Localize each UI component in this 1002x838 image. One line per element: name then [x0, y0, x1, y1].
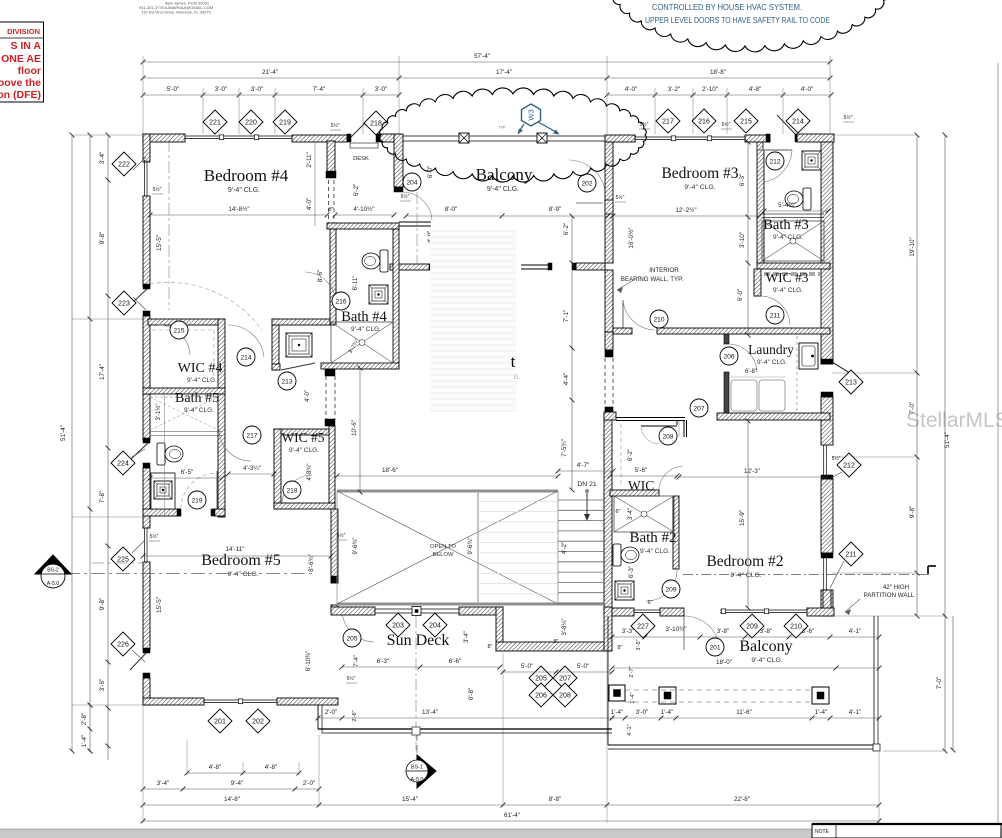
- svg-text:5½″: 5½″: [616, 194, 625, 201]
- svg-text:9'-4": 9'-4": [231, 780, 244, 787]
- svg-text:4'-7": 4'-7": [577, 462, 590, 469]
- svg-text:4'-2": 4'-2": [561, 542, 568, 555]
- svg-text:BS-2: BS-2: [47, 568, 59, 574]
- svg-text:5½″: 5½″: [722, 121, 731, 128]
- svg-text:8'-6": 8'-6": [317, 270, 324, 283]
- svg-text:8'-8": 8'-8": [549, 796, 562, 803]
- svg-text:210: 210: [653, 316, 664, 323]
- svg-text:10'-6": 10'-6": [351, 420, 358, 436]
- svg-text:214: 214: [240, 354, 251, 361]
- svg-text:3'-8": 3'-8": [717, 628, 730, 635]
- svg-text:3'-10¾": 3'-10¾": [665, 626, 686, 633]
- svg-text:2'-0": 2'-0": [325, 709, 338, 716]
- svg-text:5'-6": 5'-6": [635, 467, 648, 474]
- svg-text:9′-4″ CLG.: 9′-4″ CLG.: [684, 184, 715, 191]
- svg-text:9′-4″ CLG.: 9′-4″ CLG.: [773, 287, 803, 294]
- svg-text:9′-4″ CLG.: 9′-4″ CLG.: [351, 326, 381, 333]
- svg-text:1'-4": 1'-4": [81, 735, 88, 748]
- svg-text:221: 221: [209, 119, 221, 126]
- svg-text:6'-3": 6'-3": [739, 174, 746, 187]
- svg-text:215: 215: [740, 118, 752, 125]
- svg-text:3'-5": 3'-5": [636, 639, 642, 650]
- svg-text:9′-4″ CLG.: 9′-4″ CLG.: [640, 548, 670, 555]
- svg-text:51'-4": 51'-4": [944, 432, 951, 448]
- svg-text:202: 202: [252, 718, 264, 725]
- svg-text:209: 209: [746, 623, 758, 630]
- svg-text:3'-8": 3'-8": [760, 628, 773, 635]
- svg-text:205: 205: [535, 675, 547, 682]
- svg-text:1'-4": 1'-4": [815, 709, 828, 716]
- svg-text:3'-4": 3'-4": [157, 780, 170, 787]
- svg-text:4'-1": 4'-1": [849, 628, 862, 635]
- svg-text:3'-6": 3'-6": [99, 679, 106, 692]
- svg-text:9′-4″ CLG.: 9′-4″ CLG.: [289, 447, 319, 454]
- svg-text:9′-4″ CLG.: 9′-4″ CLG.: [757, 359, 787, 366]
- svg-text:219: 219: [279, 119, 291, 126]
- svg-text:2'-6": 2'-6": [352, 710, 358, 721]
- svg-text:Bath #3: Bath #3: [763, 217, 809, 233]
- svg-text:21'-4": 21'-4": [262, 69, 278, 76]
- svg-text:9′-4″ CLG.: 9′-4″ CLG.: [228, 187, 260, 194]
- svg-text:Laundry: Laundry: [748, 342, 794, 357]
- svg-text:5½″: 5½″: [401, 193, 410, 200]
- svg-text:17'-4": 17'-4": [496, 69, 512, 76]
- svg-text:2'-0": 2'-0": [303, 780, 316, 787]
- svg-text:2'-8": 2'-8": [81, 713, 88, 726]
- svg-text:15'-4": 15'-4": [402, 796, 418, 803]
- svg-text:9′-4″ CLG.: 9′-4″ CLG.: [773, 234, 803, 241]
- svg-text:2'-7": 2'-7": [629, 666, 635, 677]
- svg-text:6'-0": 6'-0": [427, 166, 434, 179]
- svg-text:9′-4″ CLG.: 9′-4″ CLG.: [751, 657, 782, 664]
- svg-text:6'-8": 6'-8": [745, 369, 757, 375]
- svg-text:7'-0": 7'-0": [909, 402, 916, 415]
- svg-text:oove the: oove the: [0, 77, 41, 89]
- svg-text:BS-1: BS-1: [411, 765, 423, 771]
- svg-text:StellarMLS: StellarMLS: [906, 409, 1002, 432]
- svg-text:3'-3": 3'-3": [622, 628, 635, 635]
- svg-text:UPPER LEVEL DOORS TO HAVE SAF: UPPER LEVEL DOORS TO HAVE SAFETY RAIL TO…: [645, 15, 830, 25]
- svg-text:1'-4": 1'-4": [630, 692, 636, 703]
- svg-text:W3: W3: [527, 109, 536, 120]
- svg-text:3'-0": 3'-0": [636, 709, 649, 716]
- svg-text:NOTE: NOTE: [815, 829, 830, 835]
- svg-text:224: 224: [117, 460, 129, 467]
- svg-text:6″: 6″: [647, 600, 652, 606]
- svg-text:57'-4": 57'-4": [474, 53, 490, 60]
- svg-text:Bath #2: Bath #2: [629, 530, 676, 546]
- svg-text:22'-8": 22'-8": [734, 796, 750, 803]
- svg-text:9′-4″ CLG.: 9′-4″ CLG.: [187, 377, 217, 384]
- svg-text:8″: 8″: [617, 645, 622, 651]
- svg-text:9′-4″ CLG.: 9′-4″ CLG.: [730, 572, 761, 579]
- svg-text:WIC #4: WIC #4: [178, 361, 223, 376]
- svg-text:5'-0": 5'-0": [577, 663, 590, 670]
- svg-text:3'-0": 3'-0": [215, 86, 228, 93]
- svg-text:213: 213: [281, 378, 292, 385]
- svg-text:Bedroom #2: Bedroom #2: [706, 553, 783, 570]
- svg-text:217: 217: [246, 432, 257, 439]
- svg-text:4'-8¾": 4'-8¾": [307, 464, 313, 481]
- svg-text:floor: floor: [18, 65, 41, 77]
- svg-text:4'-0": 4'-0": [305, 390, 311, 402]
- svg-text:3'-10": 3'-10": [739, 232, 746, 248]
- svg-text:203: 203: [392, 622, 404, 629]
- svg-text:TYP: TYP: [499, 126, 506, 130]
- svg-text:220: 220: [245, 119, 257, 126]
- svg-text:3'-1½": 3'-1½": [155, 404, 162, 421]
- svg-text:6'-10¾": 6'-10¾": [306, 651, 312, 671]
- svg-text:PARTITION WALL: PARTITION WALL: [864, 592, 915, 599]
- svg-text:WIC #5: WIC #5: [281, 430, 324, 445]
- svg-text:S IN A: S IN A: [10, 40, 41, 52]
- svg-text:1'-4": 1'-4": [611, 709, 624, 716]
- svg-text:CONTROLLED BY HOUSE HVAC SYSTE: CONTROLLED BY HOUSE HVAC SYSTEM.: [652, 2, 802, 12]
- svg-text:9'-8": 9'-8": [99, 598, 106, 611]
- svg-text:5'-0": 5'-0": [521, 663, 534, 670]
- svg-text:A-5.0: A-5.0: [47, 581, 60, 587]
- svg-text:14'-11": 14'-11": [225, 546, 244, 553]
- svg-text:13'-4": 13'-4": [422, 709, 438, 716]
- svg-text:227: 227: [637, 623, 649, 630]
- svg-text:3'-4": 3'-4": [628, 508, 634, 520]
- svg-text:12'-2½": 12'-2½": [675, 206, 696, 214]
- svg-text:6'-8": 6'-8": [468, 688, 475, 701]
- svg-text:216: 216: [698, 118, 710, 125]
- svg-text:206: 206: [535, 692, 547, 699]
- svg-text:9′-4″ CLG.: 9′-4″ CLG.: [227, 571, 258, 578]
- svg-text:6'-0": 6'-0": [737, 289, 744, 302]
- svg-text:Bedroom #3: Bedroom #3: [661, 165, 738, 182]
- svg-text:51'-4": 51'-4": [60, 425, 67, 441]
- svg-text:6'-5": 6'-5": [181, 469, 194, 476]
- svg-text:17'-4": 17'-4": [99, 364, 106, 380]
- svg-text:5'-4¼": 5'-4¼": [778, 202, 796, 209]
- svg-text:7'-0": 7'-0": [936, 677, 943, 690]
- svg-text:212: 212: [843, 462, 855, 469]
- svg-text:9'-8": 9'-8": [99, 232, 106, 245]
- svg-text:219: 219: [191, 497, 202, 504]
- svg-text:G.: G.: [514, 375, 521, 381]
- svg-text:t: t: [511, 352, 516, 371]
- svg-text:5½″: 5½″: [150, 533, 159, 540]
- svg-text:204: 204: [406, 179, 417, 186]
- svg-text:4'-4": 4'-4": [563, 373, 570, 386]
- svg-text:4'-3¼": 4'-3¼": [243, 465, 261, 472]
- svg-text:15'-5": 15'-5": [156, 235, 163, 251]
- svg-text:4'-0": 4'-0": [625, 86, 638, 93]
- svg-text:2'-10": 2'-10": [702, 86, 718, 93]
- svg-text:211: 211: [845, 551, 856, 558]
- svg-text:213: 213: [845, 379, 857, 386]
- svg-text:3'-6": 3'-6": [802, 628, 815, 635]
- svg-text:8'-9": 8'-9": [549, 206, 562, 213]
- svg-text:6'-2": 6'-2": [353, 184, 360, 197]
- svg-text:218: 218: [370, 120, 382, 127]
- svg-text:206: 206: [723, 353, 734, 360]
- svg-text:4'-8": 4'-8": [265, 764, 278, 771]
- svg-text:Bath #5: Bath #5: [175, 391, 219, 406]
- svg-text:201: 201: [214, 718, 226, 725]
- svg-text:INTERIOR: INTERIOR: [649, 267, 679, 274]
- svg-text:5½″: 5½″: [844, 114, 853, 121]
- svg-text:BELOW: BELOW: [433, 552, 454, 558]
- svg-text:Bath #4: Bath #4: [341, 309, 387, 325]
- svg-text:225: 225: [117, 556, 129, 563]
- svg-text:42″ HIGH: 42″ HIGH: [883, 584, 909, 591]
- svg-text:7'-1": 7'-1": [563, 310, 570, 323]
- svg-text:7'-8": 7'-8": [99, 491, 106, 504]
- svg-text:4'-8": 4'-8": [749, 86, 762, 93]
- svg-text:4'-1": 4'-1": [849, 709, 862, 716]
- svg-text:8″: 8″: [328, 207, 333, 213]
- svg-text:6″: 6″: [615, 509, 620, 515]
- svg-text:4'-0": 4'-0": [801, 86, 814, 93]
- svg-text:5½″: 5½″: [347, 675, 356, 682]
- svg-text:16'-0½": 16'-0½": [627, 227, 635, 248]
- svg-text:on (DFE): on (DFE): [0, 89, 41, 101]
- svg-text:6'-2": 6'-2": [563, 223, 570, 236]
- svg-text:5½″: 5½″: [331, 122, 340, 129]
- svg-text:ONE AE: ONE AE: [1, 53, 41, 65]
- svg-text:6'-2": 6'-2": [628, 449, 634, 461]
- svg-text:207: 207: [559, 675, 571, 682]
- svg-text:6'-11": 6'-11": [353, 276, 359, 291]
- svg-text:3'-0": 3'-0": [251, 86, 264, 93]
- svg-text:6'-3": 6'-3": [629, 566, 635, 578]
- svg-text:3'-8¼": 3'-8¼": [562, 619, 568, 636]
- svg-text:3'-2": 3'-2": [668, 86, 681, 93]
- svg-text:110 Da Vinci Drive, Nokomis, F: 110 Da Vinci Drive, Nokomis, FL 34275: [141, 10, 211, 15]
- svg-text:7'-4": 7'-4": [354, 655, 360, 667]
- svg-text:212: 212: [769, 158, 780, 165]
- svg-text:18'-0": 18'-0": [716, 659, 732, 666]
- svg-text:208: 208: [662, 433, 673, 440]
- svg-text:Bedroom #5: Bedroom #5: [201, 552, 281, 569]
- svg-text:Balcony: Balcony: [739, 638, 792, 655]
- svg-text:3'-4": 3'-4": [464, 631, 470, 643]
- svg-text:OPEN TO: OPEN TO: [430, 544, 456, 550]
- svg-text:218: 218: [286, 487, 297, 494]
- svg-text:215: 215: [173, 327, 184, 334]
- svg-text:3'-0": 3'-0": [375, 86, 388, 93]
- svg-text:201: 201: [709, 644, 720, 651]
- svg-text:9′-4″ CLG.: 9′-4″ CLG.: [487, 186, 519, 193]
- svg-text:2'-11": 2'-11": [306, 152, 313, 168]
- svg-text:5½″: 5½″: [153, 186, 162, 193]
- svg-text:222: 222: [118, 161, 130, 168]
- svg-text:Bedroom #4: Bedroom #4: [204, 166, 289, 185]
- svg-text:12'-3": 12'-3": [744, 468, 760, 475]
- svg-text:3'-4": 3'-4": [99, 152, 106, 165]
- svg-text:207: 207: [693, 405, 704, 412]
- svg-text:14'-8½": 14'-8½": [228, 205, 249, 213]
- svg-text:204: 204: [429, 622, 441, 629]
- svg-text:8″: 8″: [487, 644, 492, 650]
- svg-text:217: 217: [662, 118, 674, 125]
- svg-text:18'-8": 18'-8": [710, 69, 726, 76]
- svg-text:8″: 8″: [553, 639, 558, 645]
- svg-text:9'-6¾": 9'-6¾": [353, 538, 359, 555]
- svg-text:214: 214: [792, 118, 804, 125]
- svg-text:7'-5¾": 7'-5¾": [561, 439, 568, 457]
- svg-text:211: 211: [770, 312, 781, 319]
- svg-text:4'-0": 4'-0": [306, 198, 313, 211]
- svg-text:5½″: 5½″: [832, 455, 841, 462]
- svg-text:15'-5": 15'-5": [156, 597, 163, 613]
- svg-text:5'-0": 5'-0": [167, 86, 180, 93]
- svg-text:4'-8": 4'-8": [209, 764, 222, 771]
- svg-text:1'-4": 1'-4": [661, 709, 674, 716]
- svg-text:226: 226: [117, 641, 129, 648]
- svg-text:216: 216: [335, 298, 346, 305]
- svg-text:19'-10": 19'-10": [909, 237, 916, 257]
- svg-text:18'-6": 18'-6": [382, 467, 398, 474]
- svg-text:61'-4": 61'-4": [504, 812, 520, 819]
- svg-text:DN 21: DN 21: [577, 481, 596, 488]
- svg-text:A-5.0: A-5.0: [411, 777, 424, 783]
- svg-text:14'-8": 14'-8": [224, 796, 240, 803]
- svg-text:11'-6": 11'-6": [736, 709, 752, 716]
- svg-text:210: 210: [790, 623, 802, 630]
- svg-text:5½″: 5½″: [337, 532, 346, 539]
- svg-text:209: 209: [665, 586, 676, 593]
- svg-text:6'-6": 6'-6": [449, 658, 462, 665]
- svg-text:4'-1": 4'-1": [627, 724, 633, 735]
- svg-text:9′-4″ CLG.: 9′-4″ CLG.: [184, 407, 214, 414]
- svg-text:9'-8": 9'-8": [909, 506, 916, 519]
- svg-text:8'-6¾": 8'-6¾": [308, 554, 315, 572]
- svg-text:223: 223: [118, 300, 130, 307]
- svg-text:202: 202: [581, 180, 592, 187]
- svg-text:DIVISION: DIVISION: [7, 27, 40, 36]
- svg-text:WIC: WIC: [628, 478, 654, 493]
- svg-text:WIC #3: WIC #3: [765, 270, 808, 285]
- svg-text:9'-6¾": 9'-6¾": [468, 538, 474, 555]
- svg-text:208: 208: [559, 692, 571, 699]
- svg-text:6'-3": 6'-3": [377, 658, 390, 665]
- svg-text:205: 205: [346, 635, 357, 642]
- svg-text:4'-10½": 4'-10½": [353, 205, 374, 213]
- svg-text:7'-4": 7'-4": [313, 86, 326, 93]
- svg-text:8'-0": 8'-0": [445, 206, 458, 213]
- svg-text:15'-9": 15'-9": [739, 510, 746, 526]
- svg-text:DESK: DESK: [353, 156, 369, 162]
